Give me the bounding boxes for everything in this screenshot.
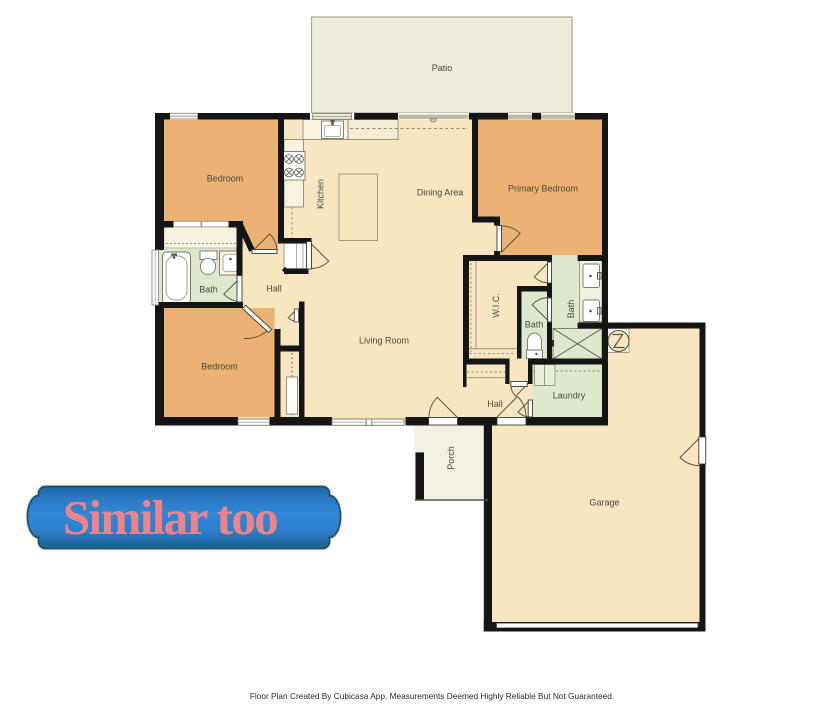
- svg-text:Bath: Bath: [199, 285, 218, 295]
- svg-text:Patio: Patio: [432, 63, 453, 73]
- svg-text:Dining Area: Dining Area: [417, 188, 464, 198]
- svg-text:Porch: Porch: [446, 446, 456, 470]
- svg-text:Kitchen: Kitchen: [316, 179, 326, 209]
- svg-text:Laundry: Laundry: [553, 391, 586, 401]
- svg-text:Primary Bedroom: Primary Bedroom: [508, 184, 578, 194]
- svg-text:Bedroom: Bedroom: [207, 174, 244, 184]
- svg-text:Hall: Hall: [266, 284, 282, 294]
- svg-text:Similar too: Similar too: [63, 490, 277, 545]
- svg-text:Garage: Garage: [589, 498, 619, 508]
- svg-text:Floor Plan Created By Cubicasa: Floor Plan Created By Cubicasa App. Meas…: [250, 691, 614, 701]
- svg-text:Living Room: Living Room: [359, 336, 409, 346]
- svg-text:W.I.C.: W.I.C.: [491, 293, 501, 318]
- svg-text:Bath: Bath: [525, 320, 544, 330]
- svg-text:Bath: Bath: [566, 300, 576, 319]
- svg-text:Hall: Hall: [487, 399, 503, 409]
- svg-text:Bedroom: Bedroom: [201, 362, 238, 372]
